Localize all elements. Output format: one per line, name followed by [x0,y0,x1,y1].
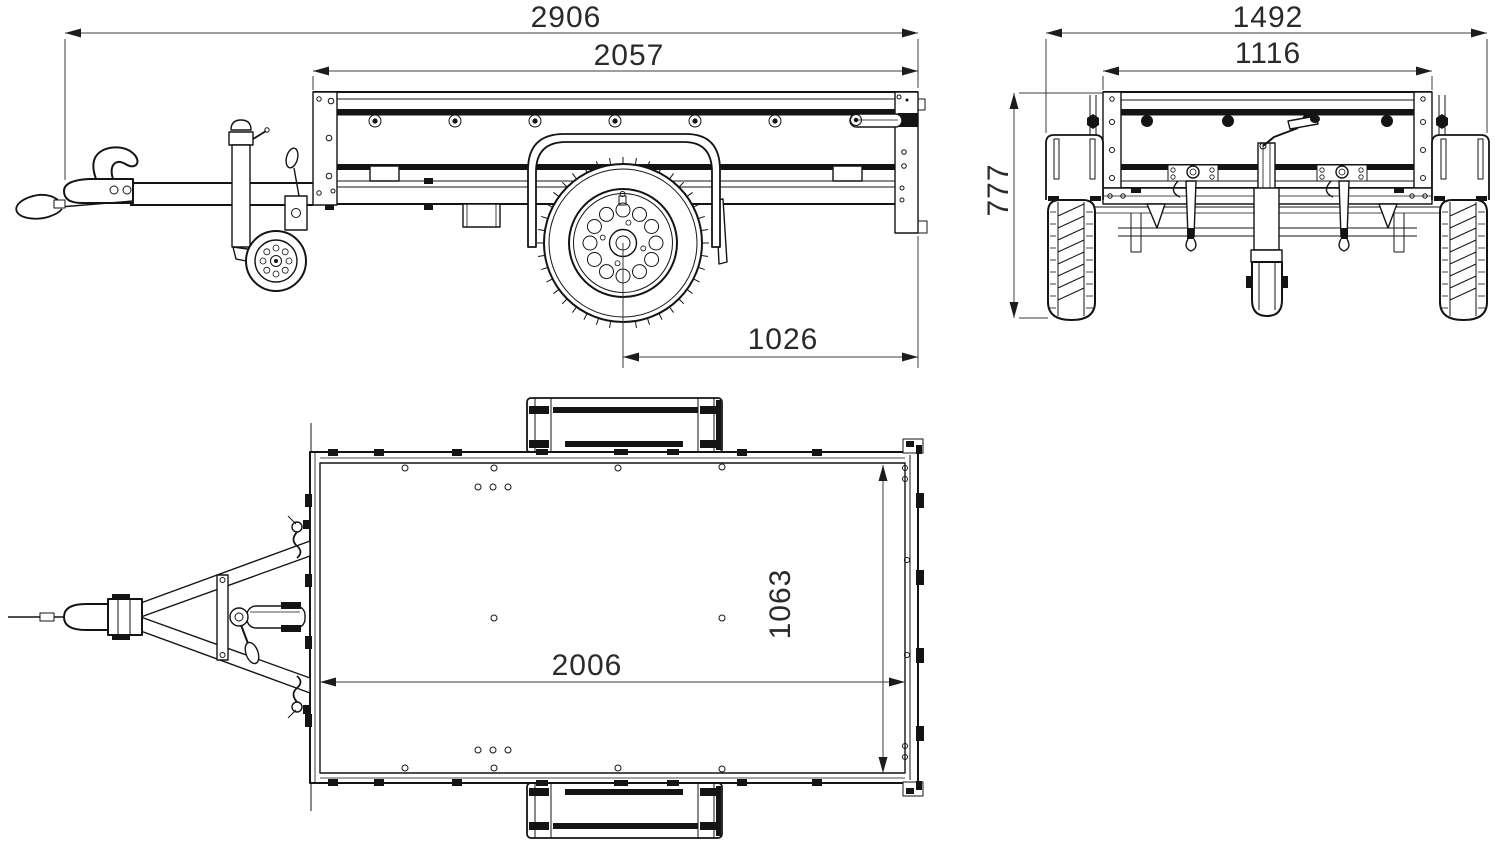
corner-post-right [1414,92,1432,188]
dim-label-bed-length: 2057 [594,39,665,72]
tailgate-latch [850,113,918,127]
rear-post-foot [918,221,927,233]
mudguard-bottom [527,783,722,838]
corner-post-left [1103,92,1121,188]
rear-post-lug [918,99,925,110]
drawbar-side [130,178,433,210]
cable-fitting [40,613,54,621]
bed-top [305,439,924,796]
jockey-tube-top [247,606,305,628]
jockey-cap [231,120,251,130]
tire-front-right [1440,200,1487,320]
dim-label-overall-length: 2906 [531,1,602,34]
jockey-wheel-front [1252,262,1282,316]
jockey-front [1246,115,1320,316]
clamp-bracket [285,196,307,230]
dim-label-axle-to-rear: 1026 [748,323,819,356]
clamp-lever-grip [284,147,300,169]
lashing-hook-left [1168,165,1218,251]
trailer-technical-drawing: 2906 2057 1026 1492 [0,0,1504,846]
lashing-hook-right [1317,165,1367,251]
coupling-side [16,147,137,218]
dim-label-overall-height: 777 [982,163,1015,216]
drawbar-top [8,516,310,718]
jockey-sleeve [1254,188,1279,250]
support-wedge-left [1147,204,1165,228]
underfloor-bracket [463,204,500,227]
jockey-clamp [229,132,253,145]
coupling-body-top [108,599,142,635]
jockey-fork-front [1251,250,1282,262]
cross-member [217,575,228,660]
fender-front-right [1432,135,1489,201]
front-post [313,92,337,205]
dim-label-bed-inner-width: 1063 [764,569,797,640]
side-plate-rear [833,166,862,181]
mudguard-top [527,398,722,453]
dim-label-overall-width: 1492 [1233,1,1304,34]
dim-side-bed-length: 2057 [313,39,918,90]
front-view [1046,92,1489,320]
coupling-head-top [64,604,110,630]
coupling-handle [93,147,137,179]
upper-trim-stripe [337,109,895,116]
side-view [16,92,927,329]
latch-pin-right [1436,114,1448,129]
upper-trim-stripe-front [1121,109,1414,116]
latch-pin-left [1087,114,1099,129]
bed-outer [310,452,918,783]
fender-front-left [1046,135,1103,201]
drawing-canvas: 2906 2057 1026 1492 [0,0,1504,846]
front-panel-bolts [1141,114,1393,127]
cable-ferrule [54,200,65,208]
jockey-tube [232,145,250,247]
dim-label-bed-inner-length: 2006 [552,649,623,682]
dim-side-overall-length: 2906 [65,1,918,180]
dim-label-inner-width: 1116 [1235,37,1301,70]
side-plate-front [370,166,399,181]
dim-front-inner-width: 1116 [1103,37,1432,90]
tire-front-left [1048,200,1095,320]
crank-boss [230,608,248,626]
